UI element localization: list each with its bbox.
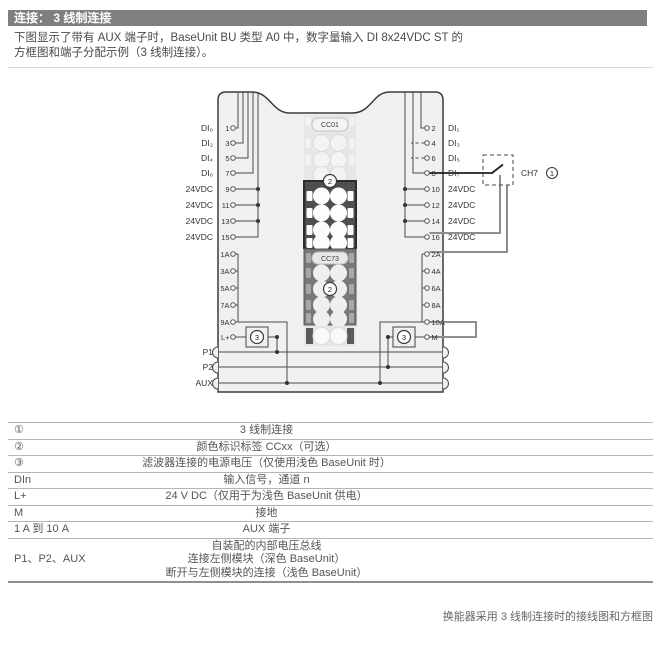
strip-section-dark — [304, 181, 356, 252]
left-signal-label: DI₂ — [201, 138, 213, 148]
filter-box-left: 3 — [246, 327, 268, 347]
right-signal-label: 24VDC — [448, 216, 475, 226]
left-aux-terminal-number: 1A — [220, 250, 229, 259]
intro-text: 下图显示了带有 AUX 端子时，BaseUnit BU 类型 A0 中，数字量输… — [14, 31, 634, 61]
right-aux-terminal-number: 2A — [432, 250, 441, 259]
bus-label-aux: AUX — [196, 378, 214, 388]
terminal-point — [425, 269, 430, 274]
right-signal-label: DI₇ — [448, 168, 460, 178]
terminal-point — [425, 235, 430, 240]
legend-term: ③ — [8, 457, 114, 471]
right-aux-terminal-number: 8A — [432, 301, 441, 310]
terminal-point — [425, 156, 430, 161]
right-terminal-number: 16 — [432, 233, 440, 242]
svg-text:2: 2 — [328, 177, 332, 186]
svg-text:1: 1 — [550, 169, 554, 178]
right-signal-label: 24VDC — [448, 184, 475, 194]
left-signal-label: DI₆ — [201, 168, 213, 178]
terminal-point — [231, 303, 236, 308]
right-terminal-number: 14 — [432, 217, 440, 226]
right-terminal-number: 4 — [432, 139, 436, 148]
terminal-lplus: L+ — [221, 333, 230, 342]
wiring-diagram: CC01 CC73 2 2 3 3 CH7 1 — [0, 83, 661, 418]
terminal-point — [425, 203, 430, 208]
legend-description: 自装配的内部电压总线 连接左侧模块（深色 BaseUnit） 断开与左侧模块的连… — [114, 540, 419, 581]
section-header: 连接： 3 线制连接 — [8, 10, 647, 26]
right-terminal-number: 6 — [432, 154, 436, 163]
terminal-point — [231, 126, 236, 131]
badge-1: 1 — [547, 168, 558, 179]
terminal-point — [425, 141, 430, 146]
terminal-point — [231, 203, 236, 208]
left-aux-terminal-number: 3A — [220, 267, 229, 276]
bus-label-p1: P1 — [203, 347, 214, 357]
left-aux-terminal-number: 7A — [220, 301, 229, 310]
color-code-strip: CC01 CC73 2 2 — [304, 115, 356, 346]
terminal-point — [231, 269, 236, 274]
legend-term: ② — [8, 441, 114, 455]
legend-row: ①3 线制连接 — [8, 423, 653, 440]
legend-description: 滤波器连接的电源电压（仅使用浅色 BaseUnit 时） — [114, 457, 419, 471]
divider-line — [8, 67, 653, 68]
right-signal-label: DI₃ — [448, 138, 460, 148]
terminal-point — [425, 126, 430, 131]
sensor-wiring: CH7 1 — [427, 155, 558, 337]
left-terminal-number: 13 — [221, 217, 229, 226]
left-aux-terminal-number: 5A — [220, 284, 229, 293]
left-signal-label: 24VDC — [186, 216, 213, 226]
left-signal-label: 24VDC — [186, 200, 213, 210]
right-signal-label: DI₁ — [448, 123, 460, 133]
svg-text:3: 3 — [402, 333, 406, 342]
terminal-point — [425, 286, 430, 291]
right-signal-label: 24VDC — [448, 200, 475, 210]
legend-table: ①3 线制连接②颜色标识标签 CCxx（可选）③滤波器连接的电源电压（仅使用浅色… — [8, 422, 653, 583]
legend-description: 3 线制连接 — [114, 424, 419, 438]
terminal-point — [231, 219, 236, 224]
terminal-point — [231, 335, 236, 340]
terminal-point — [231, 286, 236, 291]
figure-caption: 换能器采用 3 线制连接时的接线图和方框图 — [8, 608, 653, 624]
strip-section-bottom — [304, 326, 356, 346]
terminal-point — [231, 320, 236, 325]
left-signal-label: 24VDC — [186, 184, 213, 194]
right-signal-label: 24VDC — [448, 232, 475, 242]
strip-label-cc73: CC73 — [321, 256, 339, 263]
right-terminal-number: 8 — [432, 169, 436, 178]
svg-text:2: 2 — [328, 285, 332, 294]
sensor-box — [483, 155, 513, 185]
legend-term: 1 A 到 10 A — [8, 523, 114, 537]
legend-row: M接地 — [8, 506, 653, 523]
left-terminal-number: 15 — [221, 233, 229, 242]
terminal-point — [231, 156, 236, 161]
terminal-point — [425, 320, 430, 325]
terminal-point — [231, 171, 236, 176]
legend-description: 颜色标识标签 CCxx（可选） — [114, 441, 419, 455]
legend-description: 输入信号，通道 n — [114, 474, 419, 488]
badge-2-lower: 2 — [324, 283, 337, 296]
left-terminal-number: 5 — [225, 154, 229, 163]
legend-description: 接地 — [114, 507, 419, 521]
legend-term: DIn — [8, 474, 114, 488]
legend-term: L+ — [8, 490, 114, 504]
legend-row: ②颜色标识标签 CCxx（可选） — [8, 440, 653, 457]
legend-row: 1 A 到 10 AAUX 端子 — [8, 522, 653, 539]
terminal-point — [425, 219, 430, 224]
channel-label: CH7 — [521, 168, 538, 178]
right-terminal-number: 12 — [432, 201, 440, 210]
left-terminal-number: 11 — [222, 201, 230, 210]
terminal-point — [425, 335, 430, 340]
legend-row: L+24 V DC（仅用于为浅色 BaseUnit 供电） — [8, 489, 653, 506]
left-terminal-number: 9 — [225, 185, 229, 194]
left-terminal-number: 7 — [225, 169, 229, 178]
filter-box-right: 3 — [393, 327, 415, 347]
badge-2-upper: 2 — [324, 175, 337, 188]
terminal-point — [425, 303, 430, 308]
left-terminal-number: 1 — [225, 124, 229, 133]
legend-term: ① — [8, 424, 114, 438]
terminal-point — [231, 252, 236, 257]
left-signal-label: DI₀ — [201, 123, 214, 133]
right-terminal-number: 10 — [432, 185, 440, 194]
left-aux-terminal-number: 9A — [220, 318, 229, 327]
legend-row: P1、P2、AUX自装配的内部电压总线 连接左侧模块（深色 BaseUnit） … — [8, 539, 653, 584]
left-signal-label: 24VDC — [186, 232, 213, 242]
terminal-point — [231, 187, 236, 192]
svg-text:3: 3 — [255, 333, 259, 342]
terminal-m: M — [432, 333, 438, 342]
right-aux-terminal-number: 6A — [432, 284, 441, 293]
left-terminal-number: 3 — [225, 139, 229, 148]
legend-row: DIn输入信号，通道 n — [8, 473, 653, 490]
bus-label-p2: P2 — [203, 362, 214, 372]
right-aux-terminal-number: 4A — [432, 267, 441, 276]
terminal-point — [425, 171, 430, 176]
terminal-point — [231, 235, 236, 240]
right-terminal-number: 2 — [432, 124, 436, 133]
right-signal-label: DI₅ — [448, 153, 460, 163]
strip-label-cc01: CC01 — [321, 122, 339, 129]
terminal-point — [425, 187, 430, 192]
left-signal-label: DI₄ — [201, 153, 214, 163]
switch-contact — [492, 165, 503, 174]
legend-description: AUX 端子 — [114, 523, 419, 537]
terminal-point — [425, 252, 430, 257]
terminal-point — [231, 141, 236, 146]
right-aux-terminal-number: 10A — [432, 318, 445, 327]
legend-description: 24 V DC（仅用于为浅色 BaseUnit 供电） — [114, 490, 419, 504]
legend-term: P1、P2、AUX — [8, 553, 114, 567]
legend-term: M — [8, 507, 114, 521]
legend-row: ③滤波器连接的电源电压（仅使用浅色 BaseUnit 时） — [8, 456, 653, 473]
